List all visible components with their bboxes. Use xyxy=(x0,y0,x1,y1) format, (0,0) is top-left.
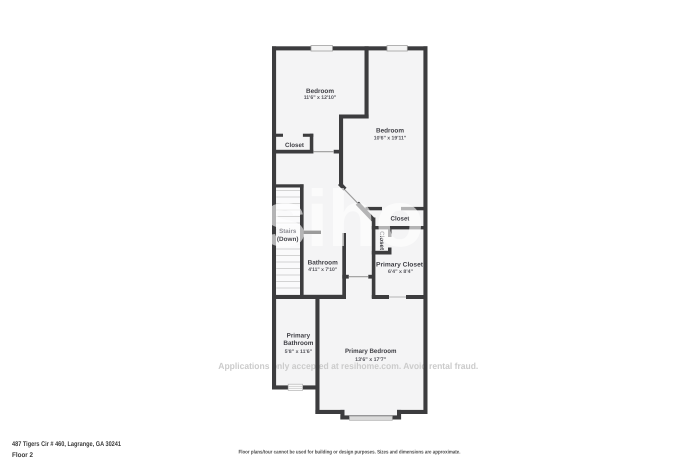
svg-text:Bedroom: Bedroom xyxy=(376,128,404,135)
svg-text:Closet: Closet xyxy=(285,142,304,149)
svg-text:Primary: Primary xyxy=(287,332,311,339)
svg-text:6'4" x 8'4": 6'4" x 8'4" xyxy=(388,269,414,275)
svg-text:Stairs: Stairs xyxy=(279,228,297,235)
svg-text:Floor 2: Floor 2 xyxy=(12,452,33,459)
svg-text:Bathroom: Bathroom xyxy=(283,340,313,347)
svg-text:Primary Bedroom: Primary Bedroom xyxy=(345,348,397,355)
svg-text:487 Tigers Cir # 460, Lagrange: 487 Tigers Cir # 460, Lagrange, GA 30241 xyxy=(12,441,121,448)
svg-text:Applications only accepted at: Applications only accepted at resihome.c… xyxy=(218,361,478,371)
svg-text:(Down): (Down) xyxy=(277,236,299,243)
svg-text:4'11" x 7'10": 4'11" x 7'10" xyxy=(308,267,338,273)
svg-text:5'8" x 11'6": 5'8" x 11'6" xyxy=(285,349,313,355)
svg-text:13'6" x 17'7": 13'6" x 17'7" xyxy=(355,357,387,363)
svg-text:11'6" x 12'10": 11'6" x 12'10" xyxy=(304,95,337,101)
svg-text:Bedroom: Bedroom xyxy=(306,88,334,95)
svg-text:10'6" x 19'11": 10'6" x 19'11" xyxy=(374,136,407,142)
svg-text:Floor plans/tour cannot be use: Floor plans/tour cannot be used for buil… xyxy=(239,450,461,456)
svg-text:resihome: resihome xyxy=(189,174,537,263)
